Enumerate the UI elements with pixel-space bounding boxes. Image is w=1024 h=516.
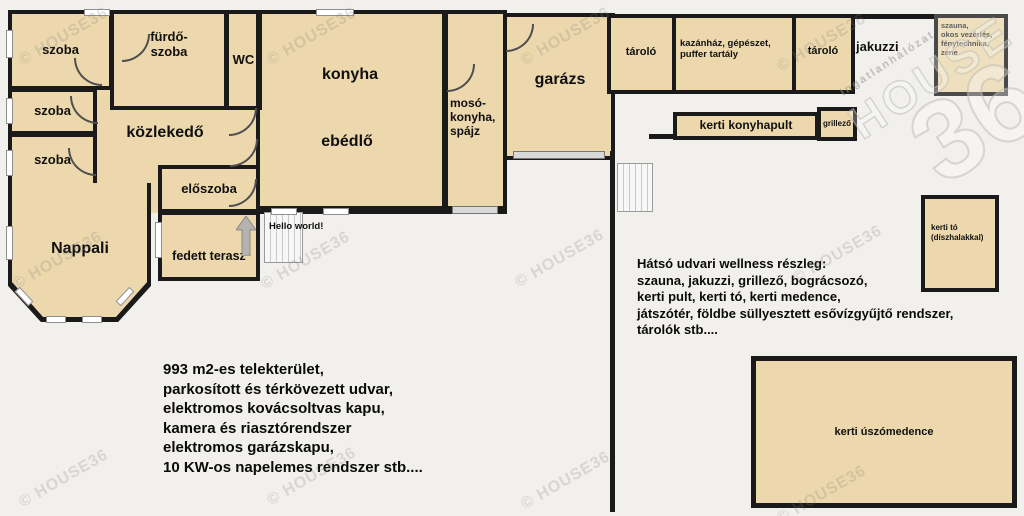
room-szauna: szauna, okos vezérlés, fénytechnika, zen… (934, 14, 1008, 96)
watermark: © HOUSE36 (518, 448, 614, 514)
counter-wall (649, 134, 677, 139)
watermark: © HOUSE36 (512, 226, 608, 292)
room-uszomedence: kerti úszómedence (751, 356, 1017, 508)
window-mark (6, 150, 13, 176)
label-garazs: garázs (520, 71, 600, 89)
label-ebedlo: ebédlő (302, 133, 392, 151)
property-features: 993 m2-es telekterület, parkosított és t… (163, 360, 493, 477)
room-label: szauna, okos vezérlés, fénytechnika, zen… (941, 21, 992, 57)
yard-boundary-wall (610, 151, 615, 512)
window-mark (323, 208, 349, 215)
label-tarolo-2: tároló (794, 45, 852, 57)
room-label: kerti úszómedence (834, 426, 933, 439)
label-jakuzzi: jakuzzi (856, 39, 899, 54)
room-label: fürdő- szoba (150, 30, 188, 60)
room-kerti-konyhapult: kerti konyhapult (673, 112, 819, 140)
window-mark (6, 30, 13, 58)
label-tarolo-1: tároló (609, 46, 673, 58)
label-kazanhaz: kazánház, gépészet, puffer tartály (680, 38, 790, 60)
room-label: szoba (42, 43, 79, 58)
label-moso: mosó- konyha, spájz (450, 96, 506, 138)
window-mark (6, 98, 13, 124)
label-nappali: Nappali (45, 240, 115, 258)
room-label: szoba (34, 104, 71, 119)
room-label: kerti konyhapult (700, 119, 793, 133)
terrace-door (452, 206, 498, 214)
terrace-arrow-icon (236, 216, 256, 256)
room-konyha-ebedlo (256, 10, 446, 210)
room-label: grillező (823, 119, 851, 128)
window-mark (316, 9, 354, 16)
window-mark (155, 222, 162, 258)
label-kozlekedo: közlekedő (120, 124, 210, 142)
watermark: © HOUSE36 (16, 446, 112, 512)
wellness-description: Hátsó udvari wellness részleg: szauna, j… (637, 256, 1024, 339)
garage-door (513, 151, 605, 159)
yard-top-wall (851, 14, 938, 19)
room-label: szoba (34, 153, 71, 168)
window-mark (46, 316, 66, 323)
window-mark (84, 9, 110, 16)
terrace-steps (264, 212, 303, 263)
window-mark (271, 208, 297, 215)
room-grillezo: grillező (817, 107, 857, 141)
label-konyha: konyha (305, 66, 395, 84)
hello-world-text: Hello world! (269, 221, 323, 232)
stairs (617, 163, 653, 212)
window-mark (6, 226, 13, 260)
room-label: WC (233, 53, 255, 68)
window-mark (82, 316, 102, 323)
floor-plan-canvas: szoba szoba szoba fürdő- szoba WC előszo… (0, 0, 1024, 516)
room-label: kerti tó (díszhalakkal) (931, 223, 983, 243)
